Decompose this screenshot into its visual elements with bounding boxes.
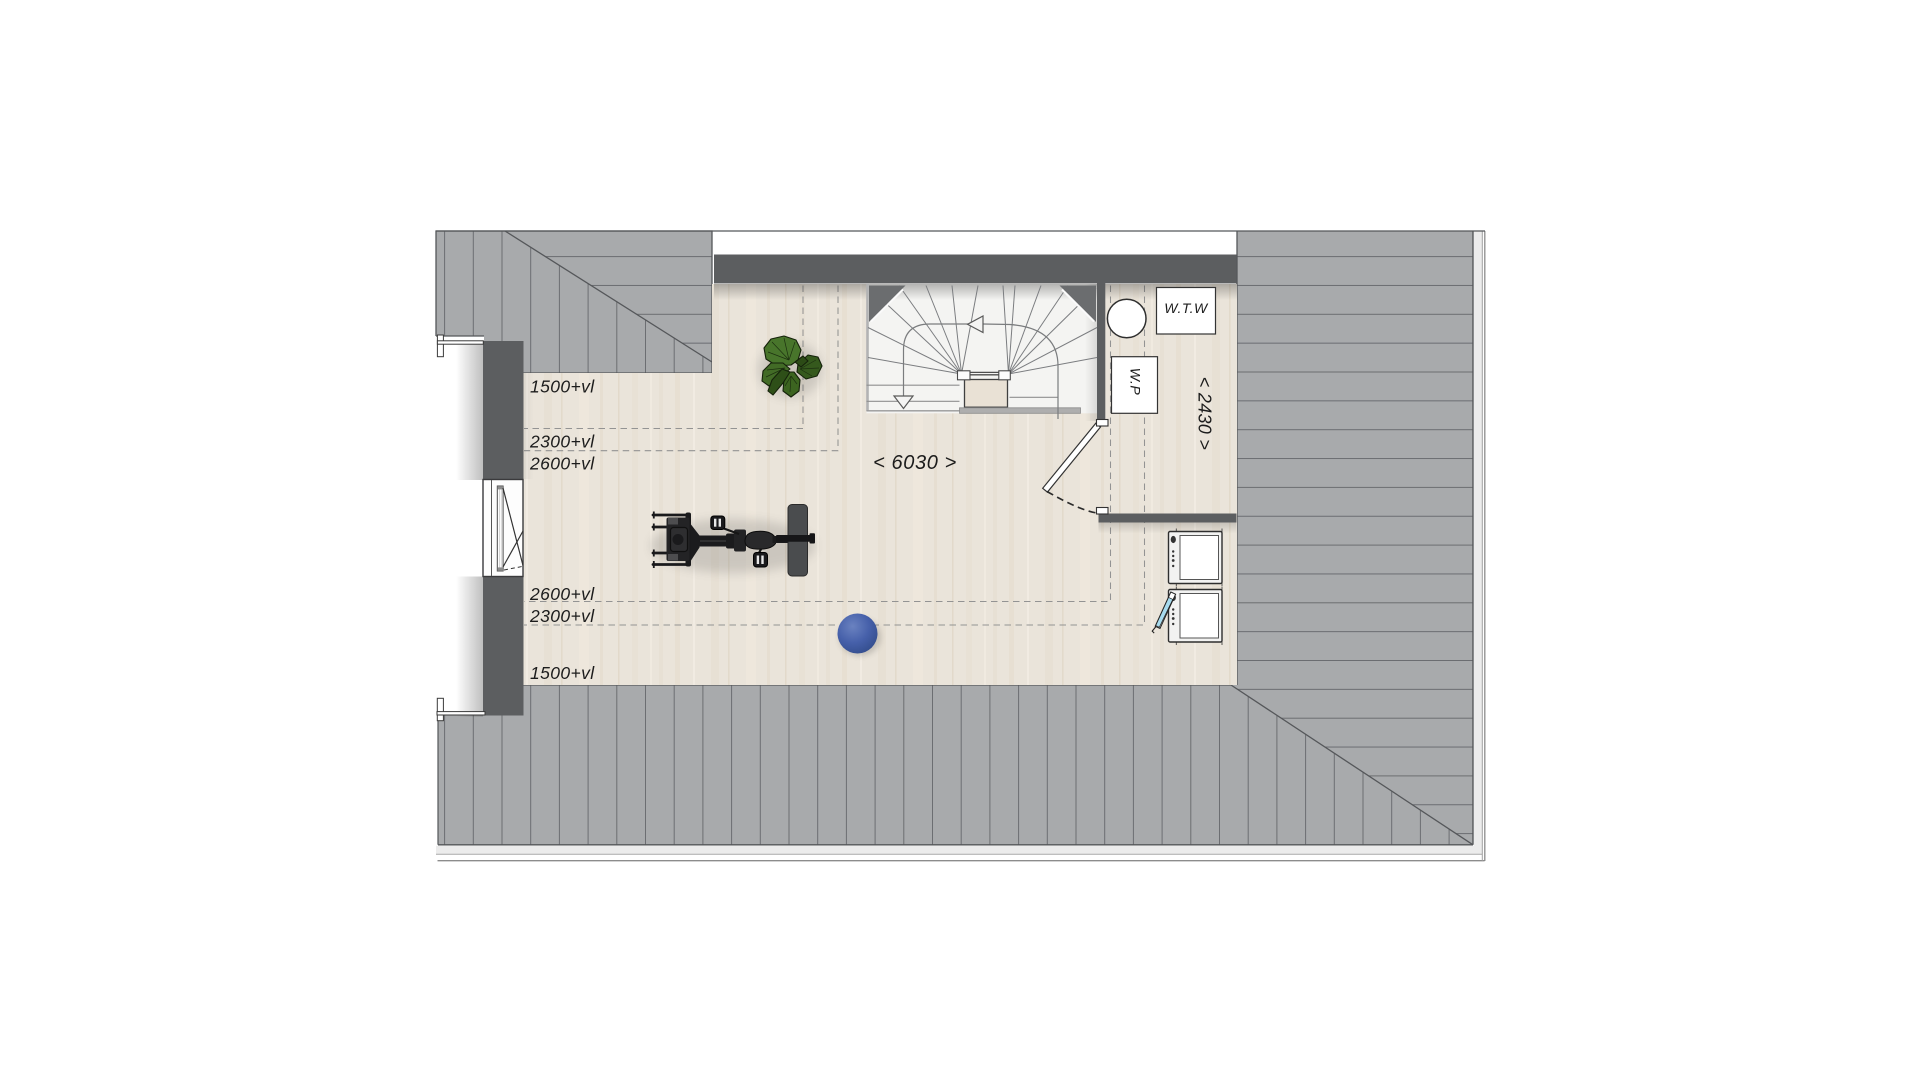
- svg-text:2600+vl: 2600+vl: [529, 584, 595, 604]
- svg-text:2300+vl: 2300+vl: [529, 606, 595, 626]
- svg-text:2300+vl: 2300+vl: [529, 432, 595, 452]
- svg-text:< 6030 >: < 6030 >: [873, 452, 957, 474]
- svg-text:W.T.W: W.T.W: [1164, 300, 1209, 316]
- svg-text:1500+vl: 1500+vl: [530, 377, 595, 397]
- svg-text:1500+vl: 1500+vl: [530, 663, 595, 683]
- svg-text:W.P: W.P: [1128, 368, 1144, 396]
- svg-text:2600+vl: 2600+vl: [529, 454, 595, 474]
- svg-text:< 2430 >: < 2430 >: [1195, 377, 1215, 450]
